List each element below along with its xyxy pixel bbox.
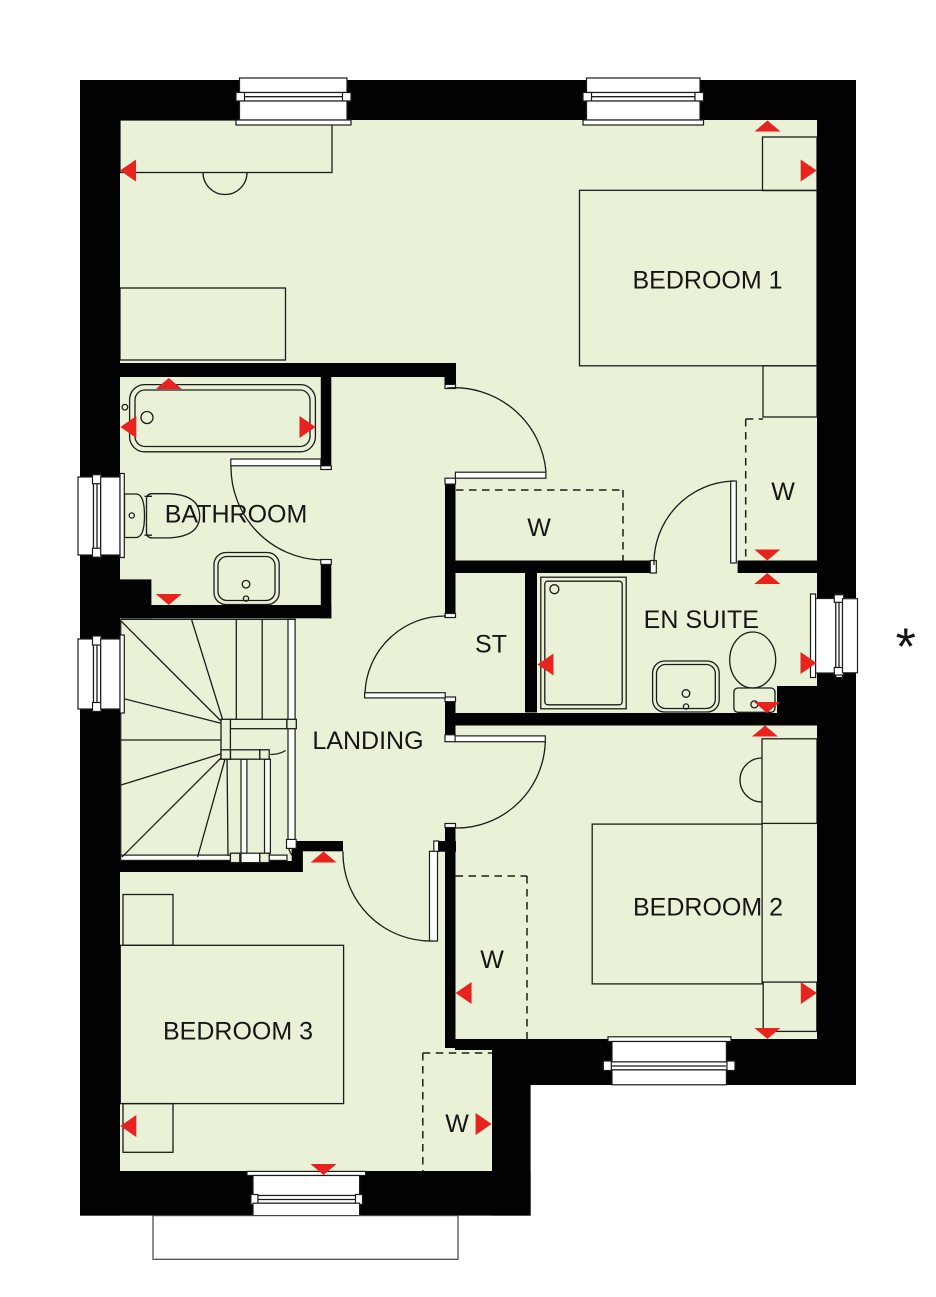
- svg-text:W: W: [771, 478, 795, 506]
- svg-text:LANDING: LANDING: [312, 727, 423, 755]
- svg-text:*: *: [896, 619, 916, 677]
- svg-text:BEDROOM 2: BEDROOM 2: [633, 893, 783, 921]
- svg-text:BEDROOM 3: BEDROOM 3: [163, 1017, 313, 1045]
- svg-text:W: W: [527, 514, 551, 542]
- svg-text:BATHROOM: BATHROOM: [165, 500, 308, 528]
- svg-text:W: W: [480, 946, 504, 974]
- svg-text:ST: ST: [475, 630, 507, 658]
- svg-text:EN SUITE: EN SUITE: [644, 606, 759, 634]
- svg-text:BEDROOM 1: BEDROOM 1: [632, 266, 782, 294]
- svg-text:W: W: [445, 1110, 469, 1138]
